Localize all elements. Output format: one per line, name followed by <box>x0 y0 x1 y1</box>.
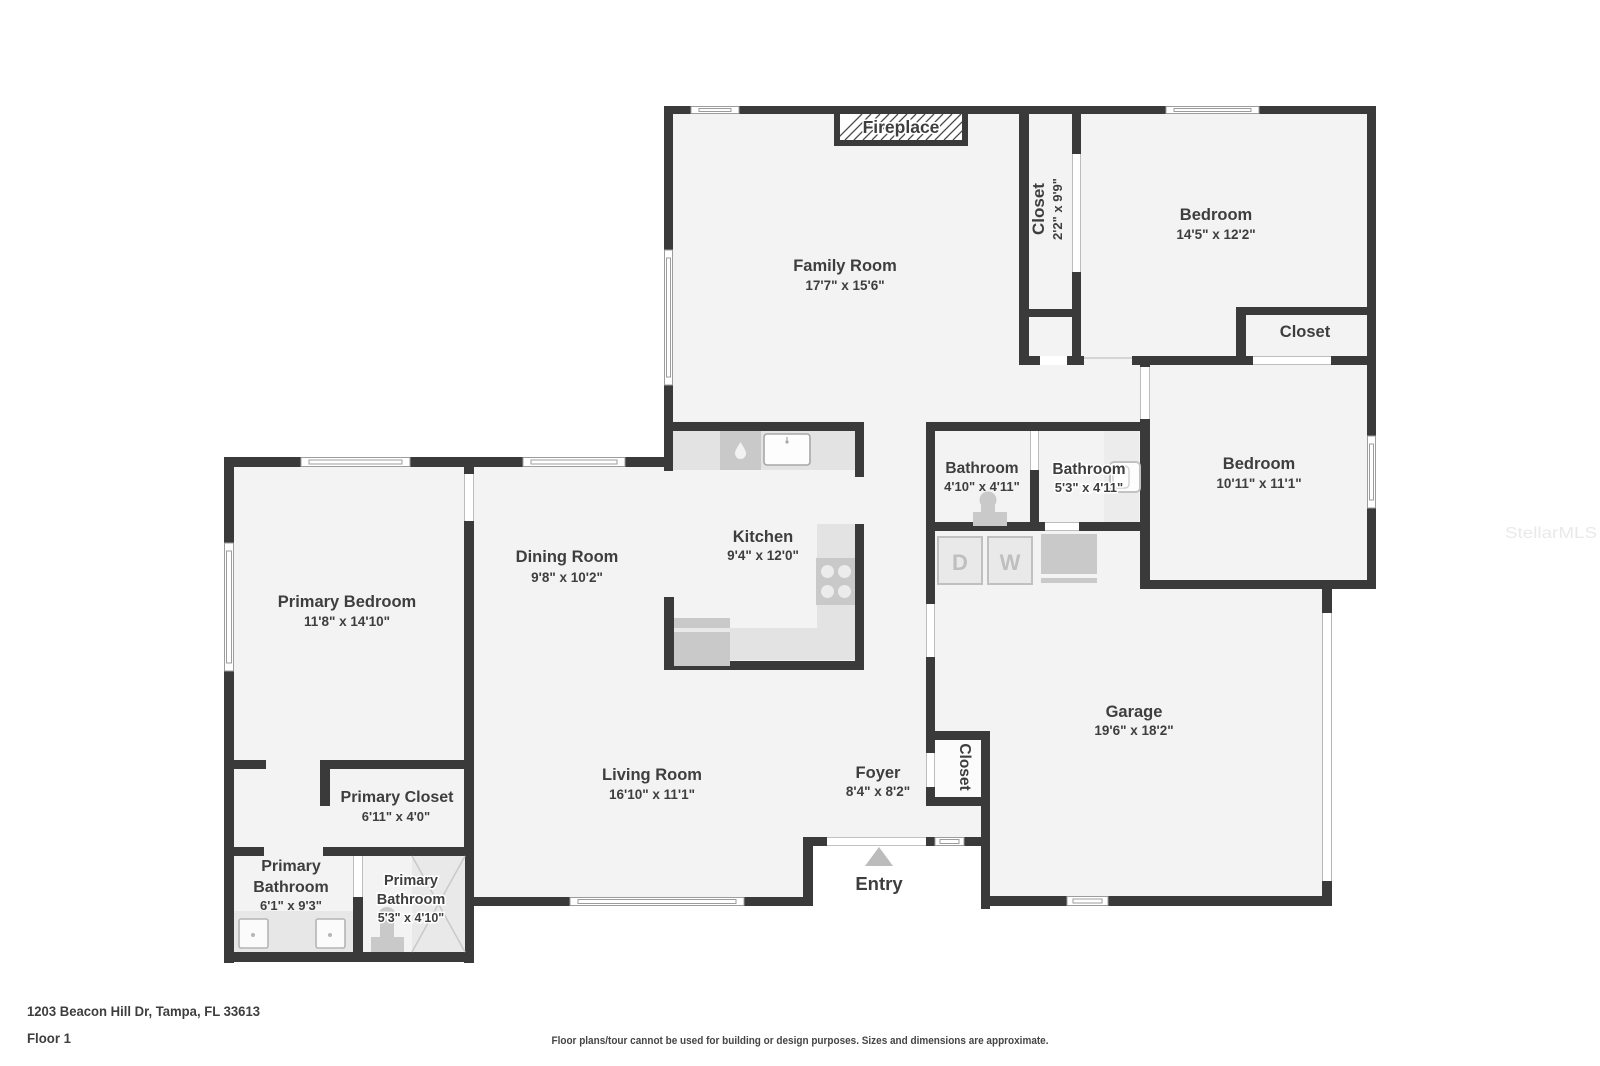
svg-text:Primary Bedroom: Primary Bedroom <box>278 593 416 611</box>
svg-text:2'2" x 9'9": 2'2" x 9'9" <box>1050 178 1065 240</box>
svg-text:16'10" x 11'1": 16'10" x 11'1" <box>609 787 695 802</box>
svg-text:Bedroom: Bedroom <box>1180 206 1252 224</box>
svg-text:Bathroom: Bathroom <box>253 879 329 896</box>
svg-text:Garage: Garage <box>1106 703 1163 721</box>
svg-text:17'7" x 15'6": 17'7" x 15'6" <box>805 278 884 293</box>
svg-text:6'11" x 4'0": 6'11" x 4'0" <box>362 809 430 824</box>
svg-text:1203 Beacon Hill Dr, Tampa, FL: 1203 Beacon Hill Dr, Tampa, FL 33613 <box>27 1003 260 1019</box>
svg-text:Kitchen: Kitchen <box>733 528 794 546</box>
svg-text:8'4" x 8'2": 8'4" x 8'2" <box>846 784 910 799</box>
svg-text:Floor plans/tour cannot be use: Floor plans/tour cannot be used for buil… <box>552 1035 1049 1047</box>
svg-text:Closet: Closet <box>956 743 973 790</box>
svg-text:Primary: Primary <box>261 858 321 875</box>
svg-text:11'8" x 14'10": 11'8" x 14'10" <box>304 614 390 629</box>
svg-text:4'10" x 4'11": 4'10" x 4'11" <box>944 479 1020 494</box>
svg-text:Foyer: Foyer <box>856 764 902 782</box>
svg-text:Entry: Entry <box>855 873 903 894</box>
svg-text:Bedroom: Bedroom <box>1223 455 1295 473</box>
svg-text:Bathroom: Bathroom <box>945 460 1018 477</box>
svg-text:14'5" x 12'2": 14'5" x 12'2" <box>1176 227 1255 242</box>
svg-text:Closet: Closet <box>1029 183 1048 235</box>
svg-text:W: W <box>1000 550 1021 575</box>
svg-text:Living Room: Living Room <box>602 766 702 784</box>
svg-text:Bathroom: Bathroom <box>1052 461 1125 478</box>
svg-text:10'11" x 11'1": 10'11" x 11'1" <box>1216 476 1301 491</box>
svg-text:Family Room: Family Room <box>793 257 897 275</box>
svg-text:D: D <box>952 550 968 575</box>
svg-text:5'3" x 4'11": 5'3" x 4'11" <box>1055 480 1123 495</box>
svg-text:Dining Room: Dining Room <box>516 548 619 566</box>
svg-text:Primary: Primary <box>384 873 438 889</box>
svg-text:6'1" x 9'3": 6'1" x 9'3" <box>260 898 322 913</box>
svg-text:Bathroom: Bathroom <box>377 892 445 908</box>
svg-text:Fireplace: Fireplace <box>863 117 940 137</box>
svg-text:Closet: Closet <box>1280 323 1331 341</box>
svg-text:Primary Closet: Primary Closet <box>341 789 455 806</box>
svg-text:Floor 1: Floor 1 <box>27 1030 71 1046</box>
svg-text:9'4" x 12'0": 9'4" x 12'0" <box>727 548 799 563</box>
svg-text:19'6" x 18'2": 19'6" x 18'2" <box>1094 723 1173 738</box>
svg-text:9'8" x 10'2": 9'8" x 10'2" <box>531 570 603 585</box>
svg-text:5'3" x 4'10": 5'3" x 4'10" <box>378 911 445 925</box>
svg-text:StellarMLS: StellarMLS <box>1505 525 1597 542</box>
